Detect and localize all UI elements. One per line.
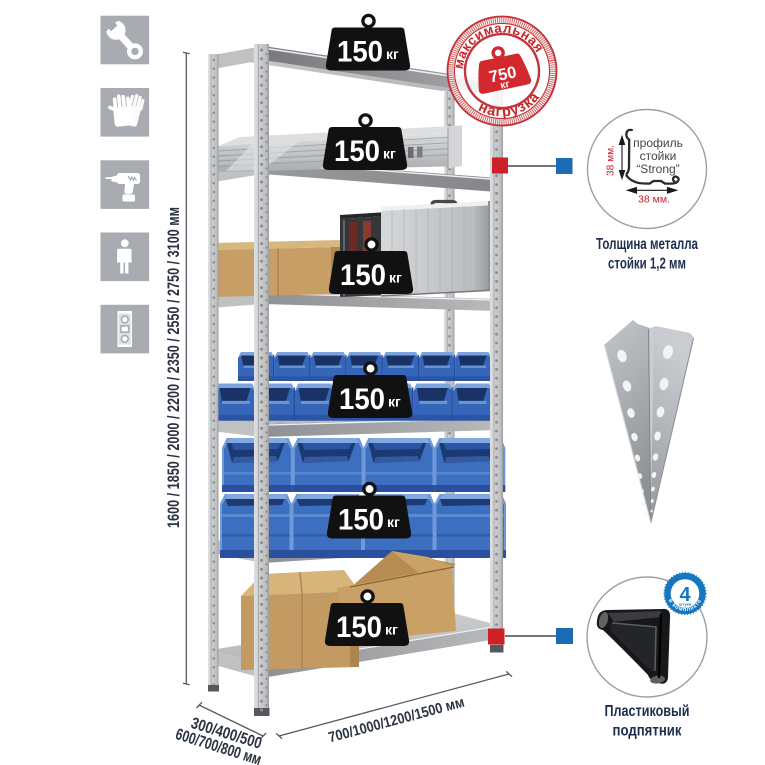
svg-text:Толщина металла: Толщина металла [596, 236, 698, 253]
svg-text:38 мм.: 38 мм. [638, 194, 670, 206]
svg-text:профиль: профиль [633, 136, 683, 150]
svg-text:Пластиковый: Пластиковый [605, 703, 690, 720]
svg-text:“Strong”: “Strong” [636, 162, 679, 176]
svg-text:штуки: штуки [679, 602, 692, 607]
svg-text:стойки: стойки [640, 149, 677, 163]
svg-text:38 мм.: 38 мм. [606, 145, 617, 176]
svg-text:подпятник: подпятник [613, 723, 682, 740]
svg-text:700/1000/1200/1500 мм: 700/1000/1200/1500 мм [327, 695, 466, 747]
svg-text:стойки 1,2 мм: стойки 1,2 мм [608, 256, 686, 273]
svg-text:1600 / 1850 / 2000 / 2200 / 23: 1600 / 1850 / 2000 / 2200 / 2350 / 2550 … [165, 207, 183, 528]
